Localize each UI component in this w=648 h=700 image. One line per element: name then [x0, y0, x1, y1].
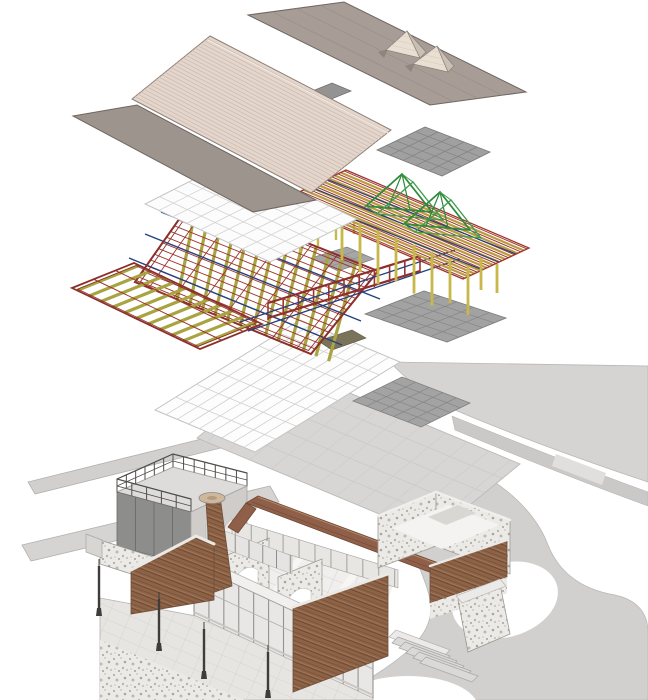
top-roof-seams [296, 9, 478, 99]
roof-plate-small [377, 127, 490, 176]
exploded-axonometric-architecture-diagram [0, 0, 648, 700]
lamp-post-base [201, 671, 207, 679]
lamp-post-base [265, 690, 271, 698]
round-table-disk-center [207, 496, 217, 500]
lamp-post-base [156, 643, 162, 651]
lamp-post-base [96, 608, 102, 616]
diagram-canvas [0, 0, 648, 700]
